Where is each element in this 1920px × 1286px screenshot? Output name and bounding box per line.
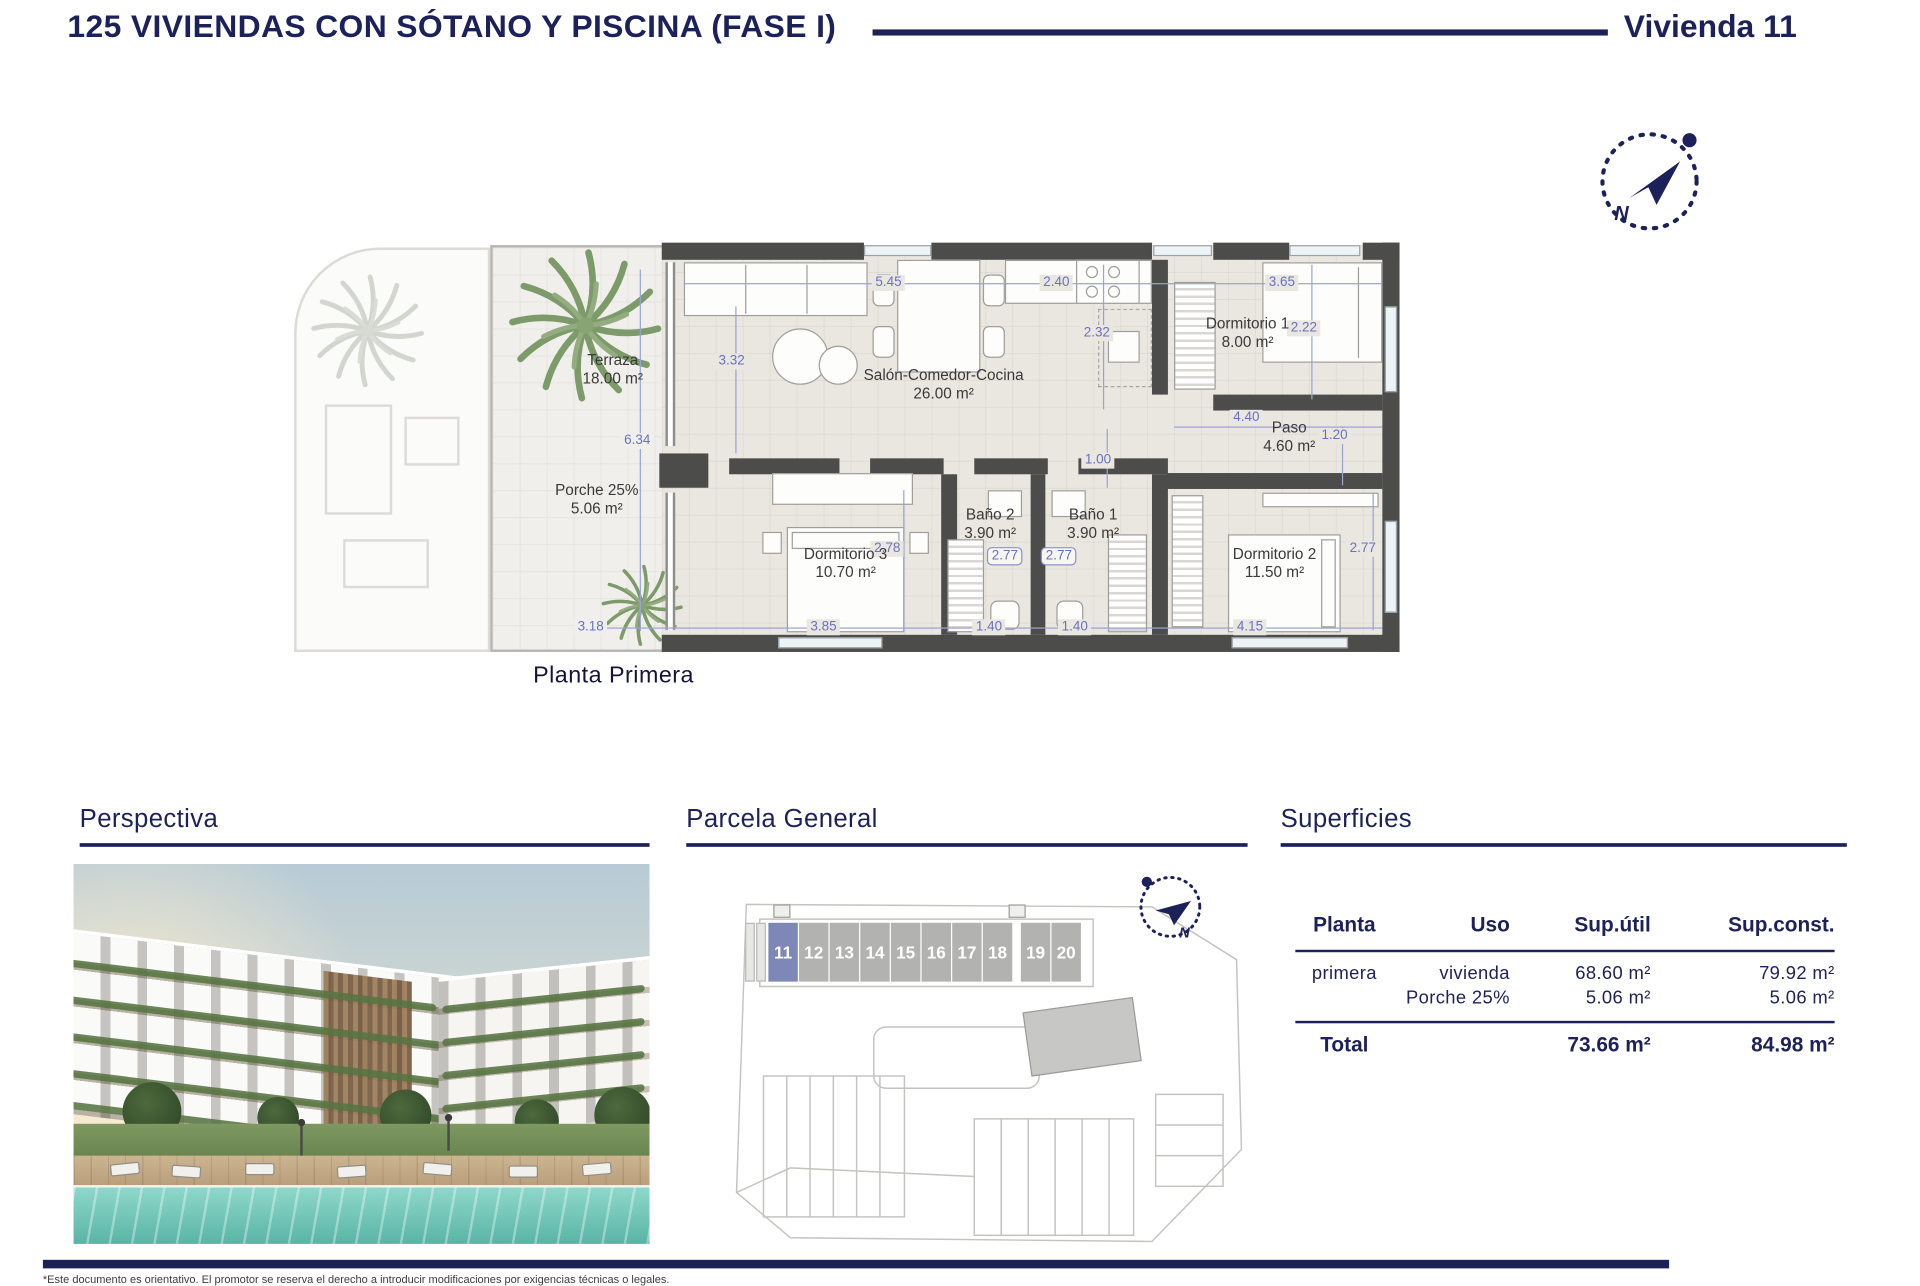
room-name: Baño 2 — [966, 506, 1015, 523]
page-title: 125 VIVIENDAS CON SÓTANO Y PISCINA (FASE… — [67, 7, 836, 45]
unit-block-11: 11 — [768, 923, 797, 982]
north-letter: N — [1614, 203, 1629, 225]
sun-lounger — [245, 1163, 274, 1175]
room-name: Porche 25% — [555, 482, 638, 499]
dining-table — [897, 260, 980, 373]
roof-vent — [773, 904, 790, 917]
nightstand — [762, 532, 782, 554]
cell-sup-const: 79.92 m² — [1651, 960, 1835, 985]
cell-planta — [1295, 984, 1393, 1009]
room-label-dormitorio2: Dormitorio 2 11.50 m² — [1233, 545, 1316, 582]
room-label-porche: Porche 25% 5.06 m² — [555, 482, 638, 519]
sun-lounger — [582, 1162, 612, 1177]
room-label-salon: Salón-Comedor-Cocina 26.00 m² — [864, 366, 1024, 403]
perspectiva-rule — [80, 843, 650, 847]
room-area: 3.90 m² — [1067, 525, 1119, 542]
unit-block-20: 20 — [1051, 923, 1080, 982]
unit-block-15: 15 — [891, 923, 920, 982]
plan-wall — [1213, 395, 1382, 411]
plan-window — [1232, 637, 1348, 648]
neighbour-furniture — [325, 404, 392, 514]
dim-label: 1.40 — [1058, 619, 1092, 635]
unit-block-edge — [756, 923, 766, 982]
sun-lounger — [509, 1165, 538, 1177]
plan-wall — [659, 453, 708, 487]
unit-block-18: 18 — [983, 923, 1012, 982]
footer-disclaimer: *Este documento es orientativo. El promo… — [43, 1273, 670, 1285]
parcela-heading: Parcela General — [686, 805, 877, 834]
room-name: Salón-Comedor-Cocina — [864, 366, 1024, 383]
total-sup-util: 73.66 m² — [1510, 1023, 1651, 1057]
cell-sup-util: 5.06 m² — [1510, 984, 1651, 1009]
dim-label: 4.40 — [1230, 410, 1264, 426]
room-label-bano2: Baño 2 3.90 m² — [964, 506, 1016, 543]
compass-icon: N — [1591, 123, 1709, 241]
dim-label: 2.77 — [1346, 541, 1380, 557]
col-header-uso: Uso — [1393, 913, 1509, 945]
plan-wall — [1213, 243, 1289, 260]
unit-title: Vivienda 11 — [1624, 7, 1774, 45]
north-letter: N — [1179, 926, 1190, 942]
bed-pillow — [1321, 539, 1336, 627]
dim-label: 2.77 — [987, 547, 1023, 566]
room-area: 18.00 m² — [583, 370, 643, 387]
sofa — [684, 262, 868, 316]
cell-planta: primera — [1295, 960, 1393, 985]
lamp-post — [300, 1124, 302, 1156]
room-label-terraza: Terraza 18.00 m² — [583, 352, 643, 389]
plan-window — [864, 245, 931, 256]
dim-label: 4.15 — [1233, 619, 1267, 635]
sun-lounger — [171, 1164, 201, 1178]
sofa-seam — [745, 265, 746, 314]
neighbour-furniture — [404, 417, 459, 466]
room-area: 4.60 m² — [1263, 438, 1315, 455]
bed-pillow-line — [1358, 267, 1359, 358]
chair — [983, 275, 1005, 307]
footer-bar — [43, 1260, 1669, 1269]
shower — [947, 539, 984, 632]
room-area: 10.70 m² — [815, 564, 875, 581]
room-label-dormitorio3: Dormitorio 3 10.70 m² — [804, 545, 887, 582]
shower — [1108, 534, 1147, 632]
superficies-rule — [1281, 843, 1847, 847]
room-name: Dormitorio 1 — [1206, 315, 1289, 332]
site-plan: 11 12 13 14 15 16 17 18 19 20 N — [729, 855, 1250, 1247]
perspectiva-heading: Perspectiva — [80, 805, 219, 834]
plan-wall — [1152, 474, 1168, 635]
floor-plan: 5.45 2.40 3.65 2.32 2.22 3.32 6.34 4.40 … — [294, 233, 1403, 664]
sofa-seam — [806, 265, 807, 314]
wardrobe — [772, 473, 913, 505]
swimming-pool — [74, 1185, 650, 1244]
col-header-sup-util: Sup.útil — [1510, 913, 1651, 945]
unit-block-14: 14 — [860, 923, 889, 982]
plan-wall — [931, 243, 1152, 260]
roof-vent — [1009, 904, 1026, 917]
burner — [1086, 266, 1098, 278]
cell-uso: vivienda — [1393, 960, 1509, 985]
lawn — [74, 1124, 650, 1158]
dim-label: 1.20 — [1318, 428, 1352, 444]
dim-label: 2.77 — [1041, 547, 1077, 566]
nightstand — [909, 532, 929, 554]
dim-label: 6.34 — [620, 433, 654, 449]
plan-window — [1153, 245, 1212, 256]
total-label: Total — [1295, 1023, 1393, 1057]
superficies-heading: Superficies — [1281, 805, 1412, 834]
dim-label: 2.32 — [1080, 325, 1114, 341]
neighbour-furniture — [343, 539, 429, 588]
chair — [873, 326, 895, 358]
dim-label: 5.45 — [872, 275, 906, 291]
unit-block-13: 13 — [830, 923, 859, 982]
dim-label: 1.00 — [1081, 453, 1115, 469]
plan-window — [778, 637, 882, 648]
wardrobe — [1172, 495, 1204, 627]
dimension-line — [903, 490, 904, 631]
header-rule — [873, 29, 1608, 35]
plan-wall — [729, 458, 839, 474]
plan-caption: Planta Primera — [533, 663, 694, 690]
room-name: Paso — [1272, 419, 1307, 436]
plan-wall — [1152, 260, 1168, 395]
sheet: 125 VIVIENDAS CON SÓTANO Y PISCINA (FASE… — [0, 0, 1920, 1281]
unit-block-edge — [745, 923, 755, 982]
unit-block-16: 16 — [922, 923, 951, 982]
dim-label: 3.18 — [574, 619, 608, 635]
unit-block-19: 19 — [1021, 923, 1050, 982]
room-label-bano1: Baño 1 3.90 m² — [1067, 506, 1119, 543]
total-sup-const: 84.98 m² — [1651, 1023, 1835, 1057]
dim-label: 1.40 — [972, 619, 1006, 635]
dim-label: 3.32 — [715, 353, 749, 369]
plan-wall — [870, 458, 944, 474]
side-table — [819, 346, 858, 385]
sun-lounger — [422, 1162, 452, 1177]
room-label-paso: Paso 4.60 m² — [1263, 419, 1315, 456]
dimension-line — [640, 270, 641, 632]
room-name: Baño 1 — [1069, 506, 1118, 523]
unit-block-17: 17 — [952, 923, 981, 982]
superficies-table: Planta Uso Sup.útil Sup.const. primera v… — [1295, 913, 1840, 1058]
dim-label: 2.40 — [1040, 275, 1074, 291]
col-header-planta: Planta — [1295, 913, 1393, 945]
palm-tree-icon — [306, 270, 429, 393]
burner — [1086, 286, 1098, 298]
burner — [1108, 286, 1120, 298]
plan-wall — [662, 243, 864, 260]
room-area: 8.00 m² — [1222, 333, 1274, 350]
room-area: 5.06 m² — [571, 500, 623, 517]
room-area: 26.00 m² — [913, 385, 973, 402]
dimension-line — [735, 306, 736, 453]
room-label-dormitorio1: Dormitorio 1 8.00 m² — [1206, 315, 1289, 352]
unit-block-12: 12 — [799, 923, 828, 982]
room-name: Terraza — [587, 352, 638, 369]
plan-wall — [974, 458, 1048, 474]
cell-uso: Porche 25% — [1393, 984, 1509, 1009]
plan-wall — [1167, 473, 1383, 489]
plan-window — [1385, 306, 1397, 392]
sun-lounger — [337, 1164, 367, 1178]
stove — [1076, 260, 1140, 304]
sliding-door — [665, 262, 675, 446]
dim-label: 2.22 — [1287, 320, 1321, 336]
col-header-sup-const: Sup.const. — [1651, 913, 1835, 945]
plan-window — [1385, 521, 1397, 613]
desk — [1262, 493, 1378, 508]
cell-sup-util: 68.60 m² — [1510, 960, 1651, 985]
chair — [983, 326, 1005, 358]
porch-opening — [665, 493, 675, 630]
dim-label: 3.65 — [1265, 275, 1299, 291]
compass-icon: N — [1134, 870, 1208, 944]
parcela-rule — [686, 843, 1247, 847]
room-name: Dormitorio 3 — [804, 545, 887, 562]
room-area: 3.90 m² — [964, 525, 1016, 542]
room-area: 11.50 m² — [1245, 564, 1304, 581]
dim-label: 3.85 — [807, 619, 841, 635]
burner — [1108, 266, 1120, 278]
lamp-post — [447, 1119, 449, 1151]
room-name: Dormitorio 2 — [1233, 545, 1316, 562]
cell-sup-const: 5.06 m² — [1651, 984, 1835, 1009]
plan-window — [1289, 245, 1360, 256]
perspective-rendering — [74, 864, 650, 1244]
dimension-line — [1373, 493, 1374, 630]
